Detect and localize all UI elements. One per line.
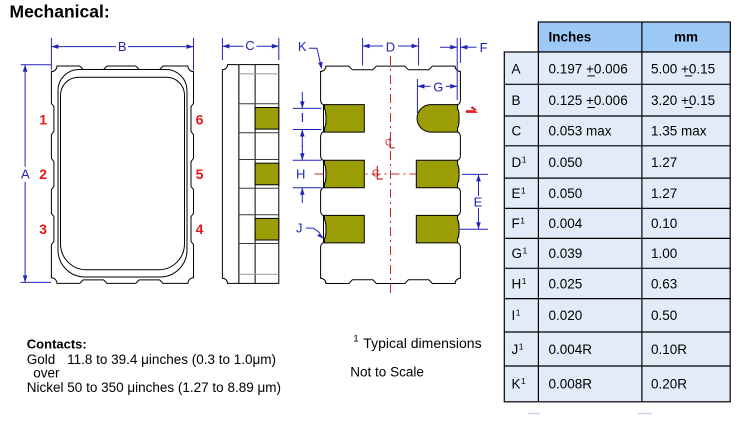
svg-text:0.025: 0.025 <box>549 276 583 291</box>
svg-text:0.020: 0.020 <box>549 308 583 323</box>
svg-text:B: B <box>512 93 521 108</box>
svg-text:0.050: 0.050 <box>549 155 583 170</box>
svg-text:6: 6 <box>196 112 204 128</box>
svg-text:1: 1 <box>353 333 358 344</box>
svg-text:0.004R: 0.004R <box>549 342 593 357</box>
svg-text:5: 5 <box>196 166 204 182</box>
svg-text:0.004: 0.004 <box>549 216 583 231</box>
svg-text:H: H <box>296 167 305 182</box>
svg-text:mm: mm <box>674 30 698 45</box>
svg-text:B: B <box>118 39 127 54</box>
svg-text:1: 1 <box>39 112 47 128</box>
svg-text:over: over <box>33 366 60 381</box>
svg-text:0.050: 0.050 <box>549 186 583 201</box>
svg-text:G: G <box>433 80 443 95</box>
svg-text:1: 1 <box>520 216 525 226</box>
svg-text:11.8 to 39.4 μinches (0.3 to 1: 11.8 to 39.4 μinches (0.3 to 1.0μm) <box>67 352 276 367</box>
svg-text:D: D <box>512 155 522 170</box>
svg-text:5.00 +0.15: 5.00 +0.15 <box>651 61 715 76</box>
svg-text:E: E <box>474 194 483 209</box>
svg-text:1: 1 <box>522 276 527 286</box>
svg-text:I: I <box>512 308 516 323</box>
svg-text:Contacts:: Contacts: <box>27 337 87 352</box>
svg-text:K: K <box>298 39 307 54</box>
svg-text:C: C <box>245 38 254 53</box>
svg-text:0.039: 0.039 <box>549 246 583 261</box>
svg-text:F: F <box>512 216 520 231</box>
svg-text:K: K <box>512 377 521 392</box>
svg-text:1: 1 <box>516 308 521 318</box>
svg-text:1.00: 1.00 <box>651 246 677 261</box>
svg-text:J: J <box>512 342 519 357</box>
svg-text:0.20R: 0.20R <box>651 377 687 392</box>
svg-text:1: 1 <box>523 246 528 256</box>
svg-text:H: H <box>512 276 522 291</box>
svg-text:1: 1 <box>522 154 527 164</box>
svg-text:0.10R: 0.10R <box>651 342 687 357</box>
svg-text:Inches: Inches <box>549 30 592 45</box>
svg-text:Typical dimensions: Typical dimensions <box>363 335 481 351</box>
svg-text:3.20 +0.15: 3.20 +0.15 <box>651 93 715 108</box>
svg-text:0.10: 0.10 <box>651 216 677 231</box>
svg-text:F: F <box>480 40 488 55</box>
svg-text:0.125 +0.006: 0.125 +0.006 <box>549 93 628 108</box>
svg-text:0.50: 0.50 <box>651 308 677 323</box>
svg-text:E: E <box>512 186 521 201</box>
svg-text:1.27: 1.27 <box>651 155 677 170</box>
svg-text:1.27: 1.27 <box>651 186 677 201</box>
svg-text:C: C <box>372 167 380 179</box>
svg-text:0.63: 0.63 <box>651 276 677 291</box>
svg-text:1: 1 <box>519 341 524 351</box>
svg-text:G: G <box>512 246 523 261</box>
svg-text:2: 2 <box>39 166 47 182</box>
svg-text:Nickel 50 to 350 μinches (1.27: Nickel 50 to 350 μinches (1.27 to 8.89 μ… <box>27 380 281 395</box>
svg-text:1: 1 <box>521 376 526 386</box>
svg-text:Mechanical:: Mechanical: <box>10 2 110 22</box>
svg-text:A: A <box>512 61 521 76</box>
svg-text:1: 1 <box>521 186 526 196</box>
svg-text:C: C <box>512 124 522 139</box>
svg-text:3: 3 <box>39 221 47 237</box>
svg-text:0.197 +0.006: 0.197 +0.006 <box>549 61 628 76</box>
svg-text:C: C <box>385 138 392 149</box>
svg-text:0.053 max: 0.053 max <box>549 124 612 139</box>
svg-text:1.35 max: 1.35 max <box>651 124 707 139</box>
svg-text:J: J <box>296 220 303 235</box>
svg-text:A: A <box>21 167 30 182</box>
svg-text:D: D <box>386 39 395 54</box>
svg-text:4: 4 <box>196 221 204 237</box>
svg-text:0.008R: 0.008R <box>549 377 593 392</box>
svg-text:Not to Scale: Not to Scale <box>350 364 424 379</box>
svg-text:I: I <box>301 110 305 125</box>
